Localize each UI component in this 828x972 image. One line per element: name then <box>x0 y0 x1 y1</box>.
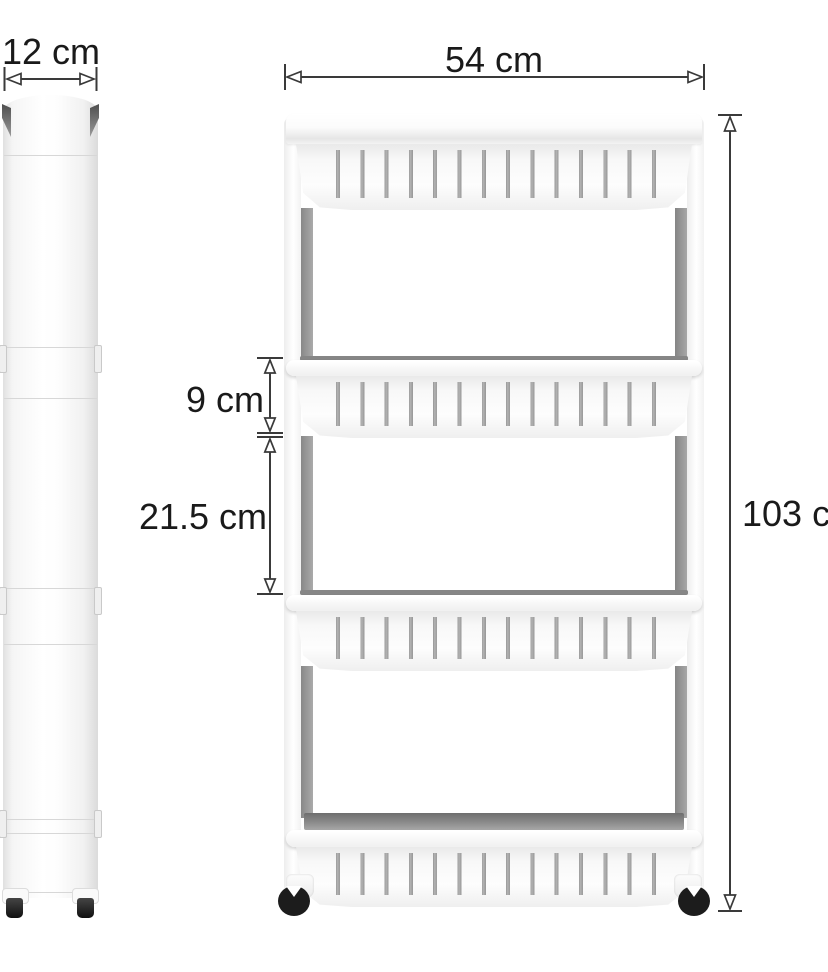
side-pole <box>300 436 313 594</box>
clearance-label: 21.5 cm <box>108 498 267 536</box>
basket-tier-3 <box>296 611 692 671</box>
side-shelf-tab <box>0 810 7 838</box>
basket-tier-2 <box>296 376 692 438</box>
side-seam <box>4 588 97 589</box>
basket-slots <box>336 617 656 659</box>
side-shelf-tab <box>0 587 7 615</box>
corner-post-right <box>687 118 704 892</box>
side-seam <box>4 644 97 645</box>
basket-height-label: 9 cm <box>140 381 264 419</box>
side-shelf-tab <box>94 587 102 615</box>
basket-tier-4 <box>296 847 692 907</box>
side-basket-corner-notch <box>2 104 11 137</box>
basket-slots <box>336 150 656 198</box>
product-dimension-diagram: 12 cm 54 cm <box>0 0 828 972</box>
front-view-cart <box>284 114 704 920</box>
side-view-cart-body <box>3 95 98 898</box>
side-pole <box>300 208 313 360</box>
front-width-dimension-arrow <box>277 60 713 96</box>
side-shelf-tab <box>0 345 7 373</box>
side-seam <box>4 155 97 156</box>
side-caster-wheel <box>6 898 23 918</box>
side-shelf-tab <box>94 810 102 838</box>
side-pole <box>300 666 313 818</box>
basket-slots <box>336 382 656 426</box>
side-basket-corner-notch <box>90 104 99 137</box>
basket-tier-1 <box>296 144 692 210</box>
side-shelf-tab <box>94 345 102 373</box>
shelf-tier-4 <box>286 830 702 847</box>
basket-slots <box>336 853 656 895</box>
side-caster-wheel <box>77 898 94 918</box>
front-height-label: 103 cm <box>742 495 828 533</box>
side-seam <box>4 398 97 399</box>
side-seam <box>4 833 97 834</box>
side-width-dimension-arrow <box>0 62 104 96</box>
side-seam <box>4 347 97 348</box>
bottom-shelf-back-rail <box>304 813 684 830</box>
shelf-tier-2 <box>286 360 702 376</box>
shelf-tier-3 <box>286 595 702 611</box>
top-shelf <box>286 114 702 144</box>
corner-post-left <box>284 118 301 892</box>
side-seam <box>4 819 97 820</box>
